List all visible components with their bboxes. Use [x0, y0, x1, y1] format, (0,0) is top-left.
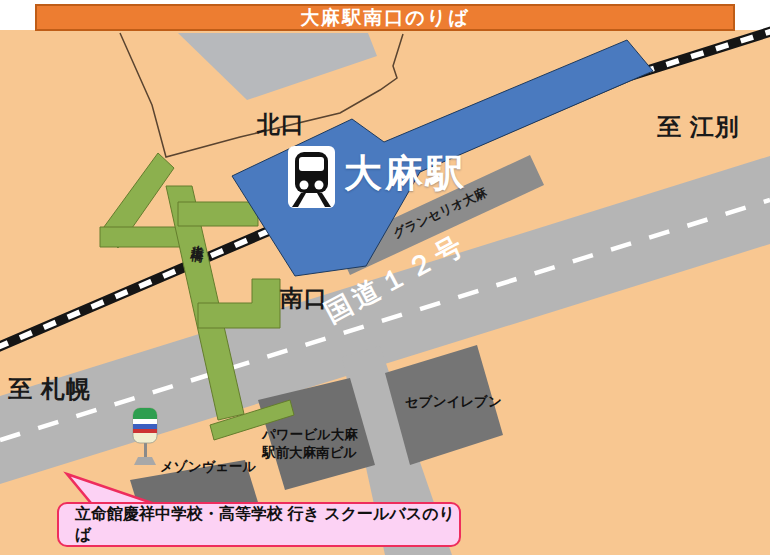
- north-block-building: [178, 33, 377, 100]
- bridge-north-connector: [178, 202, 258, 226]
- north-exit-label: 北口: [257, 111, 305, 137]
- page-title: 大麻駅南口のりば: [300, 5, 469, 31]
- bus-stop-sign-icon: [133, 408, 157, 465]
- school-bus-callout: 立命館慶祥中学校・高等学校 行き スクールバスのりば: [57, 502, 461, 547]
- station-name-label: 大麻駅: [344, 152, 467, 196]
- seven-eleven-label: セブンイレブン: [405, 394, 502, 410]
- maison-label: メゾンヴェール: [160, 459, 256, 475]
- power-building-label: パワービル大麻 駅前大麻南ビル: [262, 426, 358, 462]
- power-building-label-line2: 駅前大麻南ビル: [262, 444, 358, 462]
- title-bar: 大麻駅南口のりば: [35, 4, 735, 31]
- direction-sapporo-label: 至 札幌: [8, 375, 91, 403]
- train-icon: [288, 146, 335, 208]
- school-bus-callout-text: 立命館慶祥中学校・高等学校 行き スクールバスのりば: [75, 504, 459, 546]
- direction-ebetsu-label: 至 江別: [657, 113, 740, 141]
- station-map: 北口 南口 至 江別 至 札幌 大麻駅 国道１２号 グランセリオ大麻 歩道橋 セ…: [0, 0, 770, 555]
- south-exit-label: 南口: [280, 285, 328, 311]
- power-building-label-line1: パワービル大麻: [262, 426, 358, 444]
